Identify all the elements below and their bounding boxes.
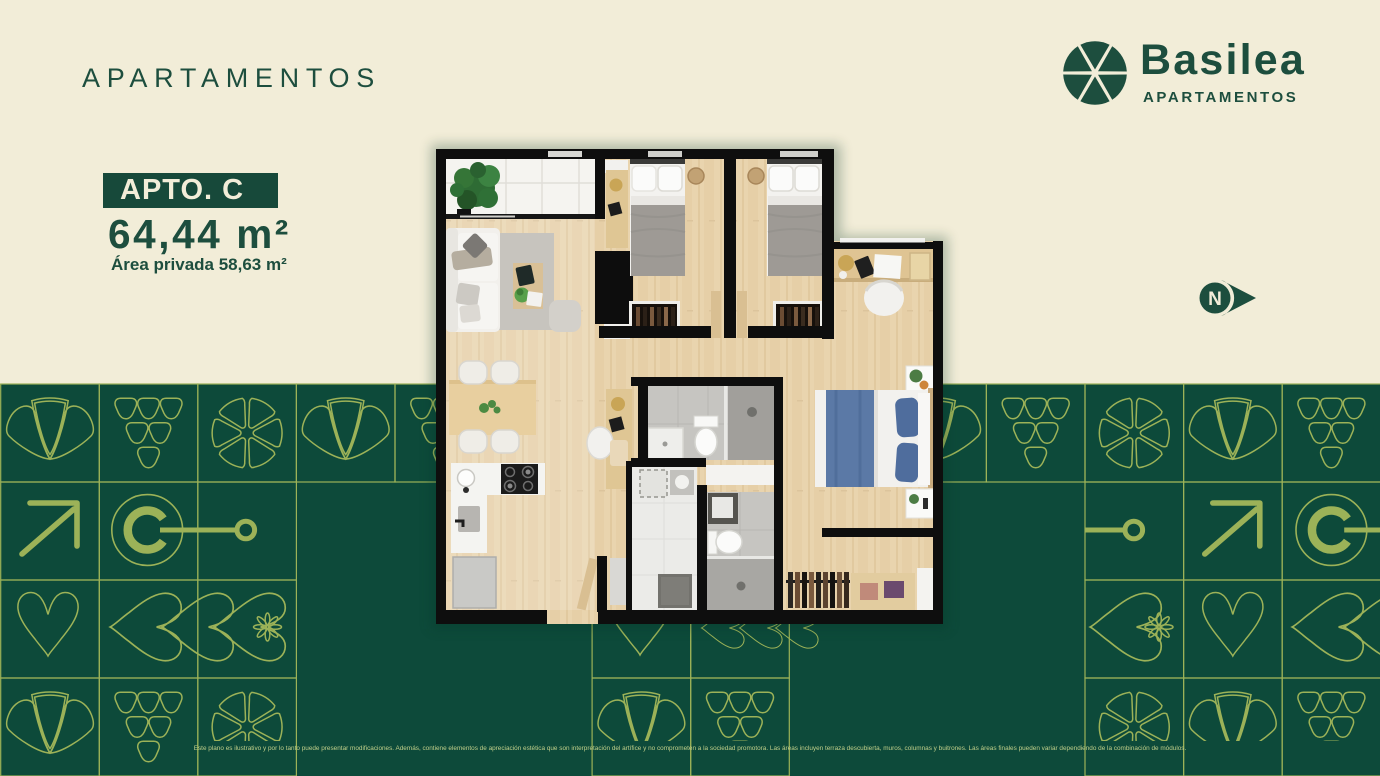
- svg-text:N: N: [1208, 289, 1222, 310]
